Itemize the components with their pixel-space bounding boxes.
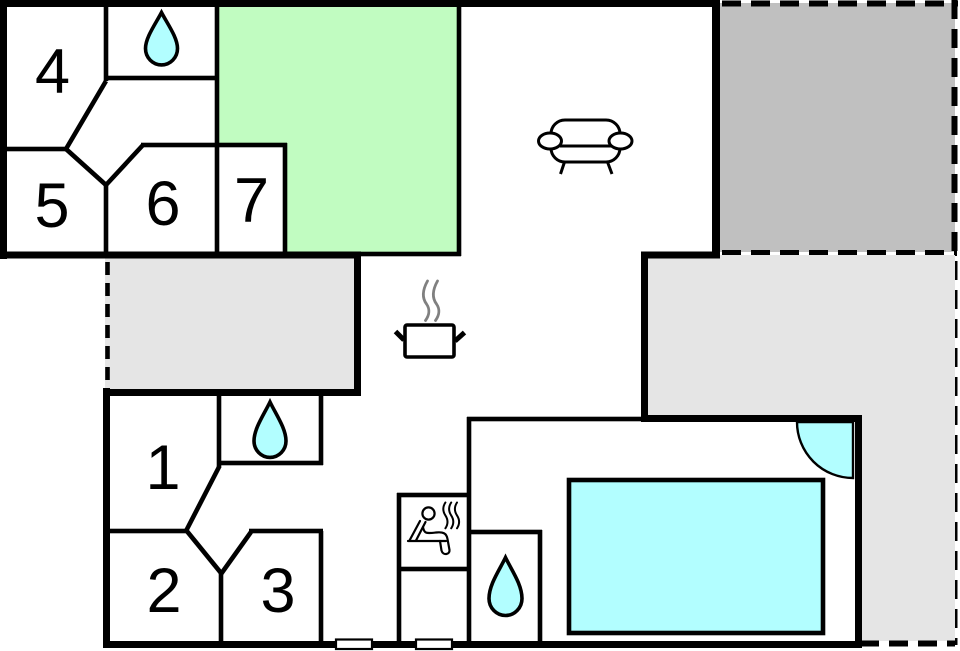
svg-text:7: 7 — [234, 166, 269, 236]
svg-text:3: 3 — [260, 556, 295, 626]
svg-text:2: 2 — [146, 556, 181, 626]
svg-text:5: 5 — [34, 171, 69, 241]
svg-text:6: 6 — [145, 169, 180, 239]
svg-text:1: 1 — [145, 433, 180, 503]
svg-text:4: 4 — [35, 37, 70, 107]
